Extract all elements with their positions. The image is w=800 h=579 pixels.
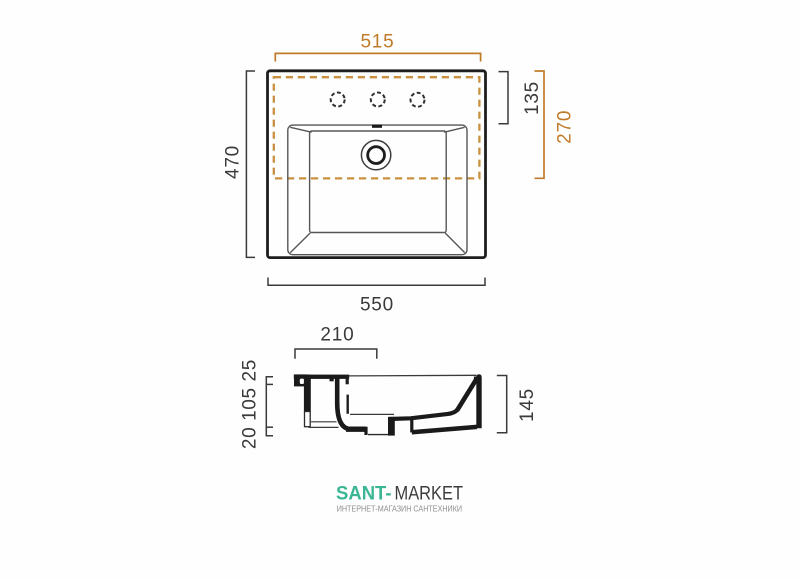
svg-text:210: 210	[320, 325, 354, 346]
svg-text:270: 270	[555, 110, 576, 144]
svg-text:MARKET: MARKET	[395, 483, 464, 504]
svg-text:ИНТЕРНЕТ-МАГАЗИН САНТЕХНИКИ: ИНТЕРНЕТ-МАГАЗИН САНТЕХНИКИ	[337, 503, 462, 513]
svg-text:20 105 25: 20 105 25	[239, 359, 260, 449]
svg-text:515: 515	[360, 32, 394, 53]
svg-text:135: 135	[522, 81, 543, 115]
svg-text:550: 550	[360, 294, 394, 315]
svg-text:SANT-: SANT-	[336, 483, 392, 504]
svg-text:145: 145	[517, 388, 538, 422]
svg-text:470: 470	[223, 145, 244, 179]
